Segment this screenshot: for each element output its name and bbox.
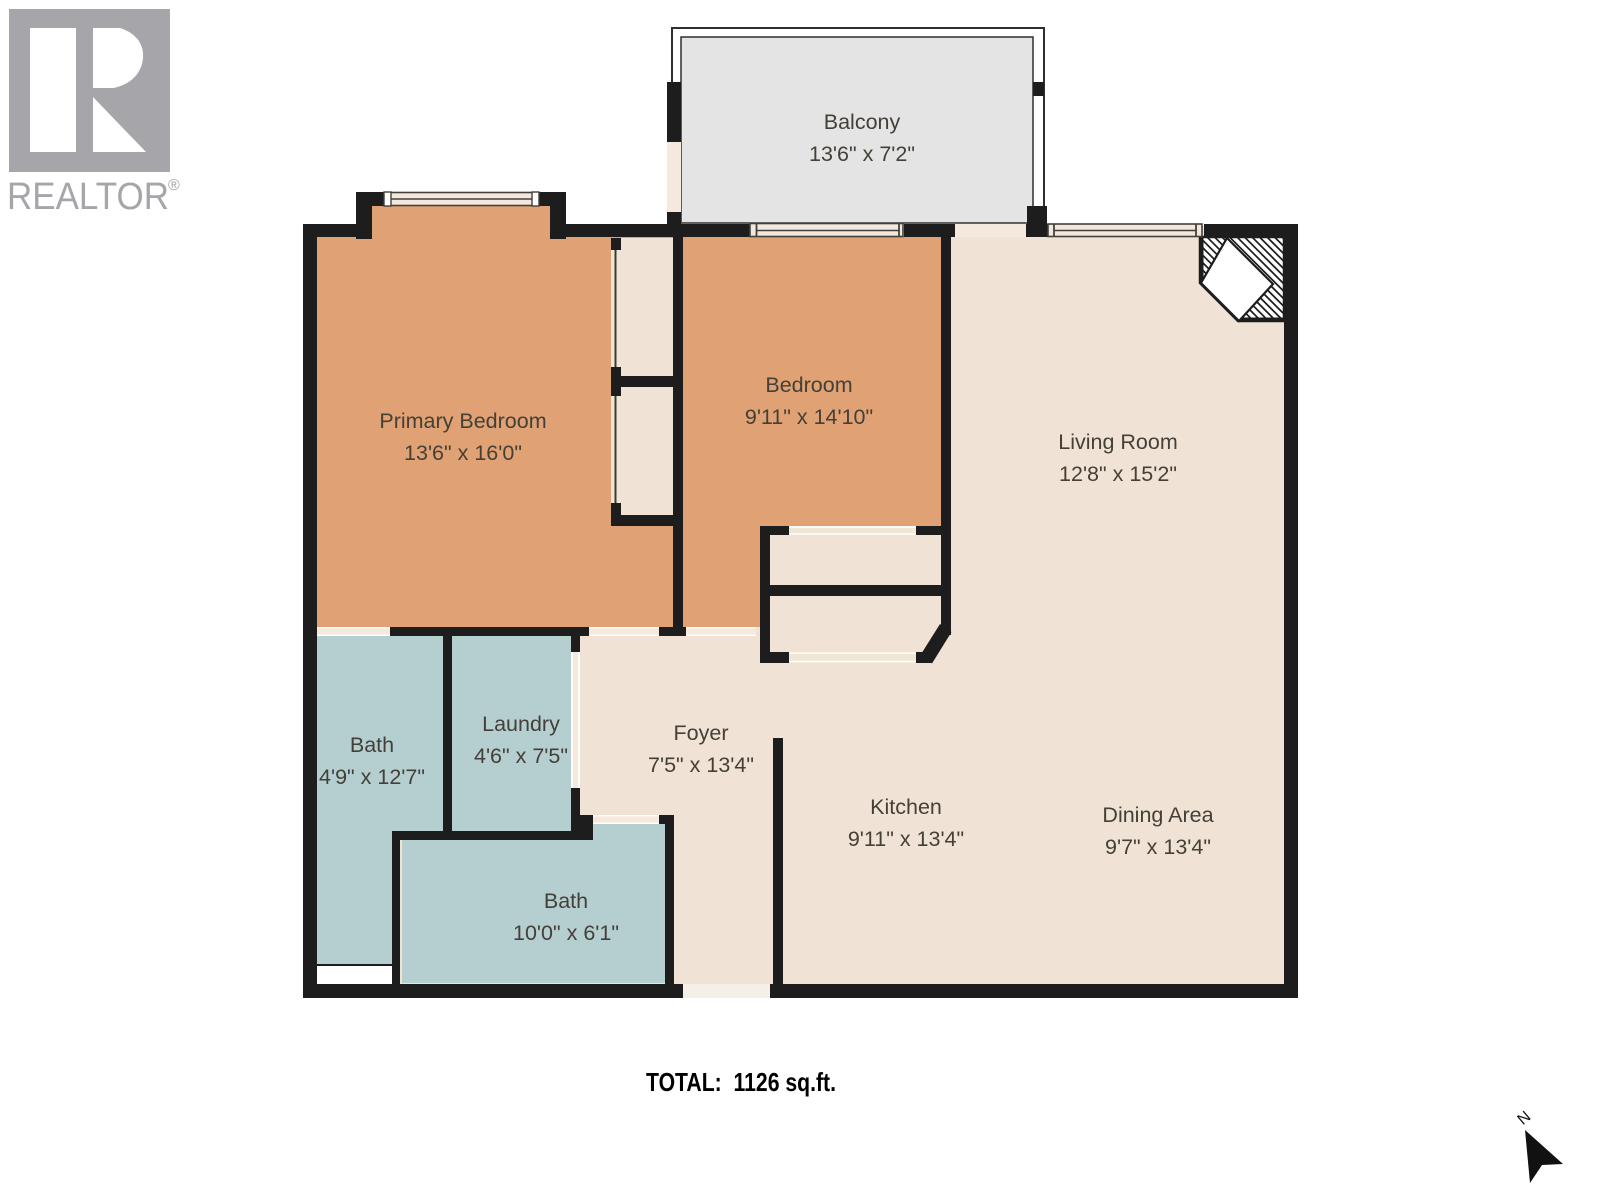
svg-text:Dining Area: Dining Area [1102, 803, 1213, 827]
svg-text:TOTAL: 1126 sq.ft.: TOTAL: 1126 sq.ft. [646, 1067, 836, 1097]
svg-text:N: N [1515, 1108, 1535, 1128]
svg-text:13'6" x 16'0": 13'6" x 16'0" [404, 441, 522, 465]
svg-text:10'0" x 6'1": 10'0" x 6'1" [513, 921, 619, 945]
svg-text:Balcony: Balcony [824, 110, 901, 134]
svg-text:13'6" x 7'2": 13'6" x 7'2" [809, 142, 915, 166]
svg-text:®: ® [168, 177, 180, 194]
svg-text:9'11" x 14'10": 9'11" x 14'10" [745, 405, 873, 429]
svg-text:Kitchen: Kitchen [870, 795, 942, 819]
svg-text:12'8" x 15'2": 12'8" x 15'2" [1059, 462, 1177, 486]
svg-text:Bath: Bath [350, 733, 394, 757]
svg-text:Living Room: Living Room [1058, 430, 1178, 454]
svg-text:REALTOR: REALTOR [7, 176, 169, 218]
svg-text:Bath: Bath [544, 889, 588, 913]
svg-text:4'6" x 7'5": 4'6" x 7'5" [474, 744, 568, 768]
svg-text:7'5" x 13'4": 7'5" x 13'4" [648, 753, 754, 777]
svg-text:Foyer: Foyer [674, 721, 729, 745]
svg-text:Laundry: Laundry [482, 712, 560, 736]
svg-text:4'9" x 12'7": 4'9" x 12'7" [319, 765, 425, 789]
svg-text:9'11" x 13'4": 9'11" x 13'4" [848, 827, 964, 851]
svg-text:9'7" x 13'4": 9'7" x 13'4" [1105, 835, 1211, 859]
svg-text:Primary Bedroom: Primary Bedroom [379, 409, 546, 433]
svg-text:Bedroom: Bedroom [765, 373, 852, 397]
